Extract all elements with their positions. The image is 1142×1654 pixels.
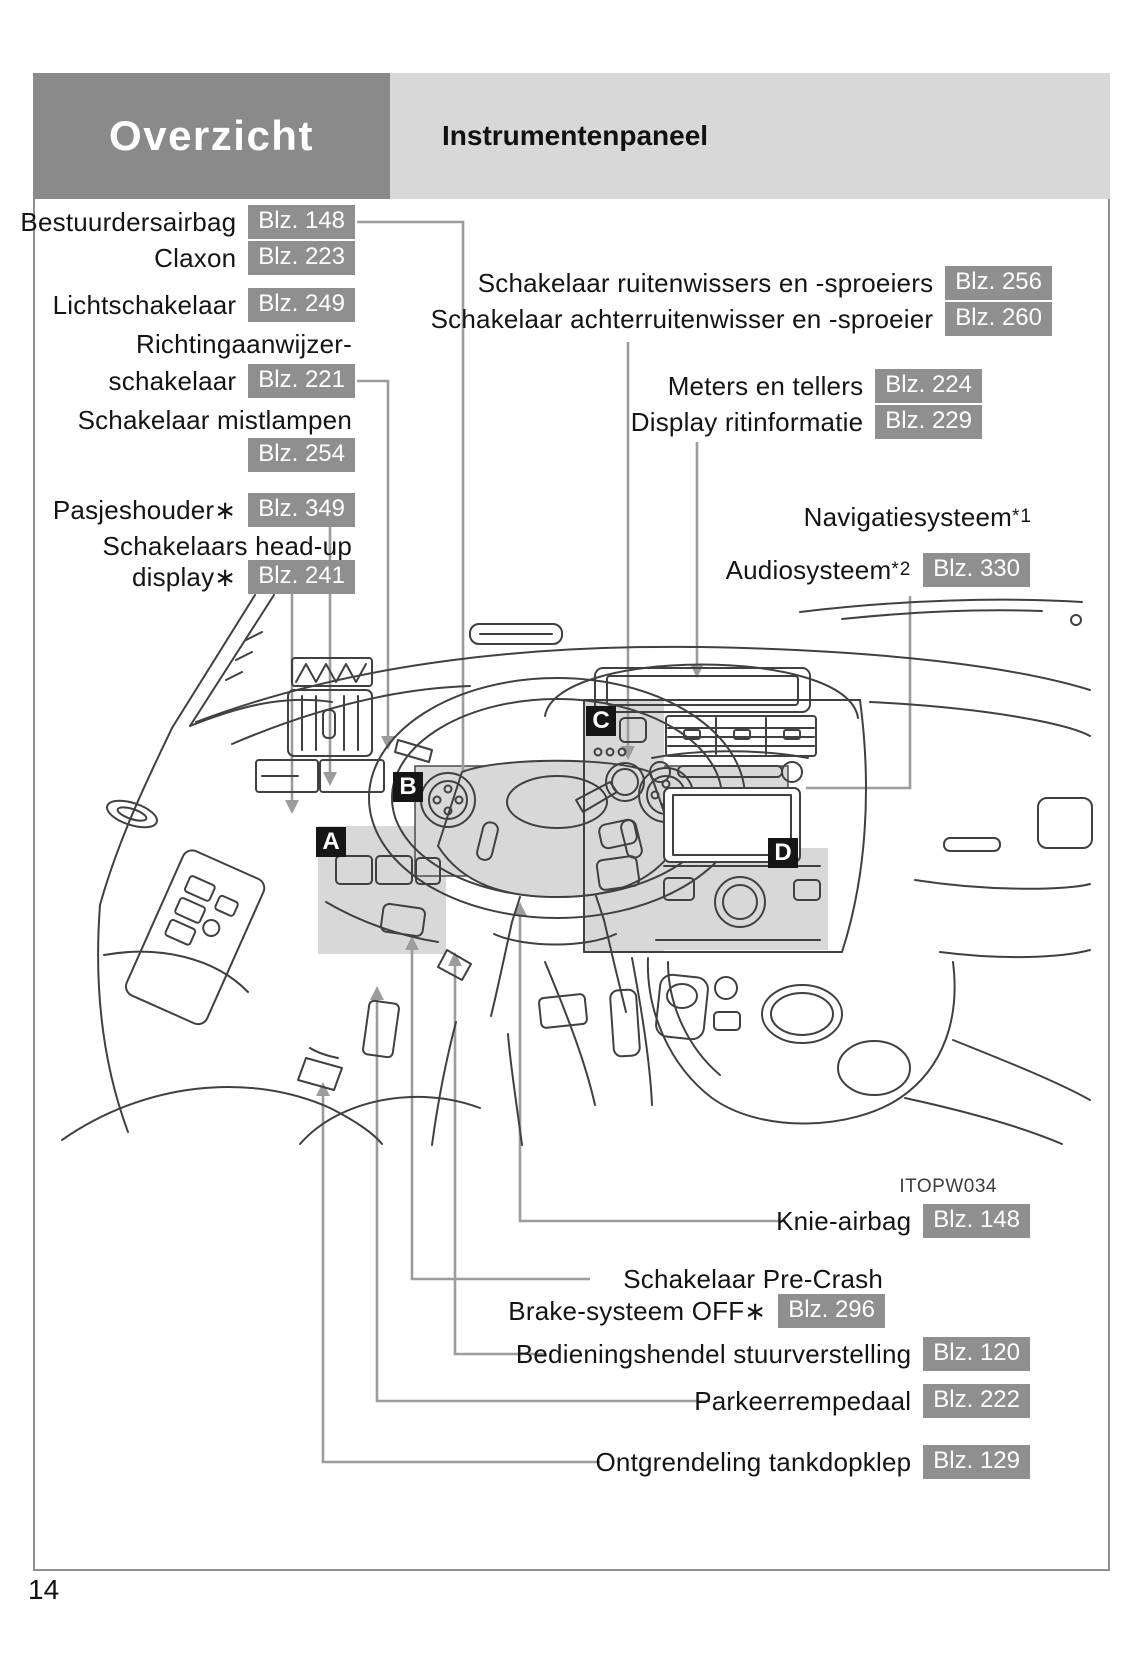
callout-label: Schakelaar mistlampen xyxy=(78,405,352,436)
page-badge: Blz. 221 xyxy=(248,364,355,398)
marker-letter-b: B xyxy=(399,773,416,801)
diagram-marker-b: B xyxy=(393,772,423,802)
callout-label: Audiosysteem xyxy=(726,555,892,586)
callout-label: Richtingaanwijzer- xyxy=(136,329,352,360)
page-badge: Blz. 249 xyxy=(248,288,355,322)
diagram-marker-d: D xyxy=(768,838,798,868)
page-title: Instrumentenpaneel xyxy=(442,120,708,152)
callout-lichtschakelaar: Lichtschakelaar Blz. 249 xyxy=(53,288,355,322)
page-title-bar: Instrumentenpaneel xyxy=(390,73,1110,199)
callout-label: Schakelaar ruitenwissers en -sproeiers xyxy=(478,268,934,299)
footnote-ref: *2 xyxy=(891,559,911,581)
figure-code: ITOPW034 xyxy=(899,1176,997,1198)
callout-label: schakelaar xyxy=(109,366,237,397)
callout-headup-line1: Schakelaars head-up xyxy=(102,529,352,563)
marker-letter-d: D xyxy=(774,839,791,867)
callout-label: Schakelaar Pre-Crash xyxy=(623,1264,883,1295)
callout-label: Brake-systeem OFF∗ xyxy=(508,1296,766,1327)
page-badge: Blz. 222 xyxy=(923,1384,1030,1418)
callout-label: display∗ xyxy=(132,562,236,593)
page-badge: Blz. 241 xyxy=(248,560,355,594)
callout-precrash-line1: Schakelaar Pre-Crash xyxy=(623,1262,883,1296)
callout-label: Pasjeshouder∗ xyxy=(53,495,236,526)
callout-label: Claxon xyxy=(154,243,236,274)
page-badge: Blz. 260 xyxy=(945,302,1052,336)
callout-headup-line2: display∗ Blz. 241 xyxy=(132,560,355,594)
callout-navigatiesysteem: Navigatiesysteem*1 xyxy=(804,500,1032,534)
callout-ritinformatie: Display ritinformatie Blz. 229 xyxy=(631,405,982,439)
page-badge: Blz. 129 xyxy=(923,1445,1030,1479)
page-badge: Blz. 120 xyxy=(923,1337,1030,1371)
page-badge: Blz. 223 xyxy=(248,241,355,275)
page-badge: Blz. 254 xyxy=(248,438,355,472)
callout-label: Meters en tellers xyxy=(668,371,864,402)
callout-label: Bedieningshendel stuurverstelling xyxy=(516,1339,911,1370)
marker-letter-a: A xyxy=(322,828,339,856)
callout-label: Lichtschakelaar xyxy=(53,290,237,321)
callout-stuurverstelling: Bedieningshendel stuurverstelling Blz. 1… xyxy=(516,1337,1030,1371)
chapter-title: Overzicht xyxy=(109,112,314,160)
callout-label: Schakelaar achterruitenwisser en -sproei… xyxy=(431,304,934,335)
callout-tankdopklep: Ontgrendeling tankdopklep Blz. 129 xyxy=(596,1445,1031,1479)
callout-label: Ontgrendeling tankdopklep xyxy=(596,1447,912,1478)
callout-ruitenwissers: Schakelaar ruitenwissers en -sproeiers B… xyxy=(478,266,1052,300)
callout-knie-airbag: Knie-airbag Blz. 148 xyxy=(776,1204,1030,1238)
diagram-marker-a: A xyxy=(316,827,346,857)
marker-letter-c: C xyxy=(592,707,609,735)
page-badge: Blz. 256 xyxy=(945,266,1052,300)
callout-label: Parkeerrempedaal xyxy=(694,1386,911,1417)
callout-mistlampen-line1: Schakelaar mistlampen xyxy=(78,403,352,437)
diagram-marker-c: C xyxy=(586,706,616,736)
callout-precrash-line2: Brake-systeem OFF∗ Blz. 296 xyxy=(508,1294,885,1328)
footnote-ref: *1 xyxy=(1012,506,1032,528)
page-badge: Blz. 349 xyxy=(248,493,355,527)
callout-audiosysteem: Audiosysteem*2 Blz. 330 xyxy=(726,553,1030,587)
callout-label: Display ritinformatie xyxy=(631,407,864,438)
page-badge: Blz. 330 xyxy=(923,553,1030,587)
chapter-tab: Overzicht xyxy=(33,73,390,199)
page-badge: Blz. 224 xyxy=(875,369,982,403)
callout-richtingaanwijzer-line2: schakelaar Blz. 221 xyxy=(109,364,355,398)
callout-meters: Meters en tellers Blz. 224 xyxy=(668,369,982,403)
callout-achterruitenwisser: Schakelaar achterruitenwisser en -sproei… xyxy=(431,302,1052,336)
page-number: 14 xyxy=(28,1574,59,1606)
callout-bestuurdersairbag: Bestuurdersairbag Blz. 148 xyxy=(20,205,355,239)
callout-label: Knie-airbag xyxy=(776,1206,911,1237)
page-badge: Blz. 148 xyxy=(923,1204,1030,1238)
callout-label: Navigatiesysteem xyxy=(804,502,1012,533)
page-badge: Blz. 296 xyxy=(778,1294,885,1328)
callout-parkeerrempedaal: Parkeerrempedaal Blz. 222 xyxy=(694,1384,1030,1418)
callout-label: Schakelaars head-up xyxy=(102,531,352,562)
callout-richtingaanwijzer-line1: Richtingaanwijzer- xyxy=(136,327,352,361)
callout-pasjeshouder: Pasjeshouder∗ Blz. 349 xyxy=(53,493,355,527)
page-badge: Blz. 148 xyxy=(248,205,355,239)
callout-claxon: Claxon Blz. 223 xyxy=(154,241,355,275)
callout-mistlampen-badge: Blz. 254 xyxy=(248,438,355,472)
callout-label: Bestuurdersairbag xyxy=(20,207,236,238)
page-badge: Blz. 229 xyxy=(875,405,982,439)
